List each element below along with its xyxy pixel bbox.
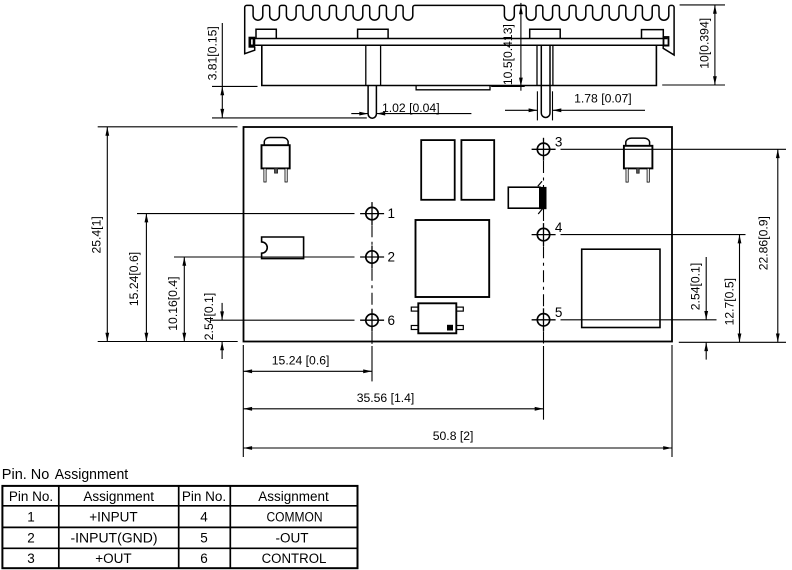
svg-text:6: 6	[388, 313, 396, 328]
svg-text:15.24[0.6]: 15.24[0.6]	[127, 252, 141, 306]
svg-text:Pin No.: Pin No.	[9, 489, 53, 504]
svg-text:4: 4	[555, 220, 563, 235]
svg-text:5: 5	[555, 305, 563, 320]
svg-text:COMMON: COMMON	[266, 510, 322, 525]
svg-text:10.16[0.4]: 10.16[0.4]	[166, 276, 180, 330]
svg-text:2.54[0.1]: 2.54[0.1]	[202, 293, 216, 340]
svg-text:3: 3	[555, 135, 563, 150]
svg-text:Pin No.: Pin No.	[182, 489, 226, 504]
svg-text:-OUT: -OUT	[276, 531, 309, 546]
svg-text:15.24 [0.6]: 15.24 [0.6]	[272, 354, 330, 368]
svg-text:50.8 [2]: 50.8 [2]	[433, 429, 474, 443]
svg-text:Assignment: Assignment	[258, 489, 329, 504]
svg-text:1: 1	[27, 510, 35, 525]
svg-text:25.4[1]: 25.4[1]	[90, 216, 104, 253]
svg-text:Assignment: Assignment	[83, 489, 154, 504]
svg-text:10.5[0.413]: 10.5[0.413]	[501, 24, 515, 85]
svg-text:12.7[0.5]: 12.7[0.5]	[722, 278, 736, 325]
svg-text:+INPUT: +INPUT	[89, 510, 137, 525]
svg-text:Pin. No: Pin. No	[2, 467, 50, 483]
svg-text:3: 3	[27, 551, 35, 566]
svg-text:2.54[0.1]: 2.54[0.1]	[689, 263, 703, 310]
svg-text:10[0.394]: 10[0.394]	[698, 18, 712, 69]
svg-text:+OUT: +OUT	[95, 551, 131, 566]
svg-text:2: 2	[27, 531, 35, 546]
svg-text:1.02 [0.04]: 1.02 [0.04]	[382, 101, 440, 115]
svg-text:CONTROL: CONTROL	[262, 551, 327, 566]
svg-text:-INPUT(GND): -INPUT(GND)	[71, 531, 158, 546]
svg-text:2: 2	[388, 250, 396, 265]
svg-text:3.81[0.15]: 3.81[0.15]	[206, 26, 220, 80]
svg-text:Assignment: Assignment	[55, 467, 128, 483]
svg-text:1.78 [0.07]: 1.78 [0.07]	[574, 92, 632, 106]
svg-text:6: 6	[200, 551, 208, 566]
svg-text:4: 4	[200, 510, 208, 525]
svg-text:1: 1	[388, 206, 396, 221]
svg-text:35.56 [1.4]: 35.56 [1.4]	[357, 391, 415, 405]
svg-text:5: 5	[200, 531, 208, 546]
svg-text:22.86[0.9]: 22.86[0.9]	[757, 216, 771, 270]
